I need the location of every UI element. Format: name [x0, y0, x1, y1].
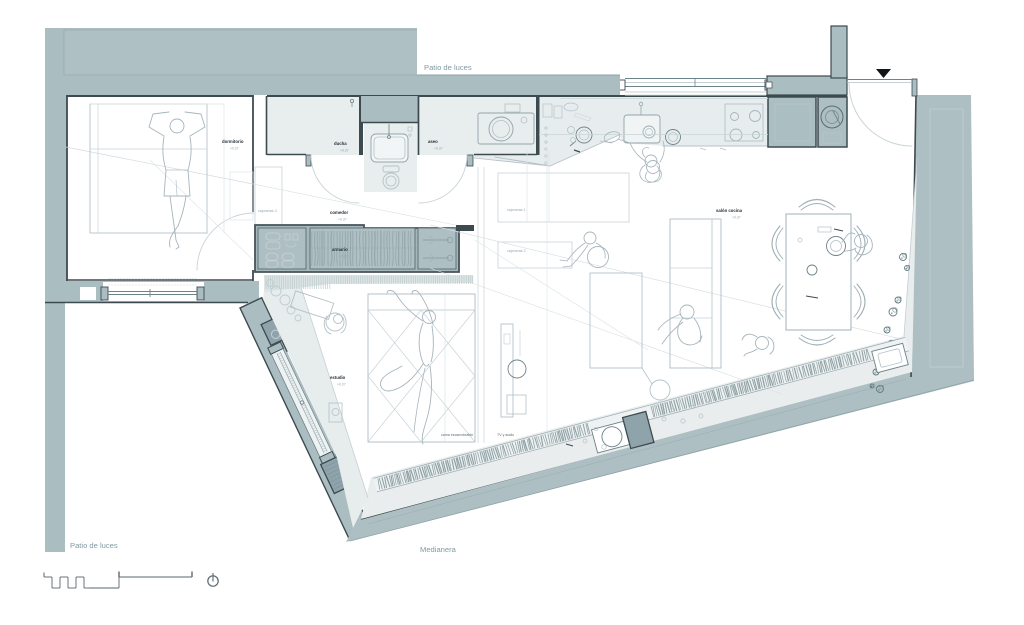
svg-text:TV y audio: TV y audio — [497, 433, 514, 437]
svg-text:+0.37: +0.37 — [434, 147, 443, 151]
svg-text:dormitorio: dormitorio — [222, 139, 244, 144]
svg-text:cajoneras 2: cajoneras 2 — [507, 249, 526, 253]
svg-text:Patio de luces: Patio de luces — [70, 541, 118, 550]
svg-text:ducha: ducha — [334, 141, 347, 146]
svg-text:+0.37: +0.37 — [340, 149, 349, 153]
svg-text:aseo: aseo — [428, 139, 438, 144]
svg-text:Patio de luces: Patio de luces — [424, 63, 472, 72]
svg-text:+0.37: +0.37 — [732, 216, 741, 220]
svg-text:+0.37: +0.37 — [338, 218, 347, 222]
svg-text:armario: armario — [332, 247, 348, 252]
svg-text:salón cocina: salón cocina — [716, 208, 743, 213]
svg-text:cajoneras 1: cajoneras 1 — [507, 208, 526, 212]
svg-text:comedor: comedor — [330, 210, 348, 215]
svg-text:Medianera: Medianera — [420, 545, 457, 554]
svg-text:estudio: estudio — [330, 375, 346, 380]
svg-text:+0.37: +0.37 — [230, 147, 239, 151]
svg-text:+0.37: +0.37 — [337, 383, 346, 387]
svg-text:cama escamoteable: cama escamoteable — [441, 433, 473, 437]
svg-text:cajoneras 3: cajoneras 3 — [258, 209, 277, 213]
svg-text:+0.37: +0.37 — [339, 255, 348, 259]
